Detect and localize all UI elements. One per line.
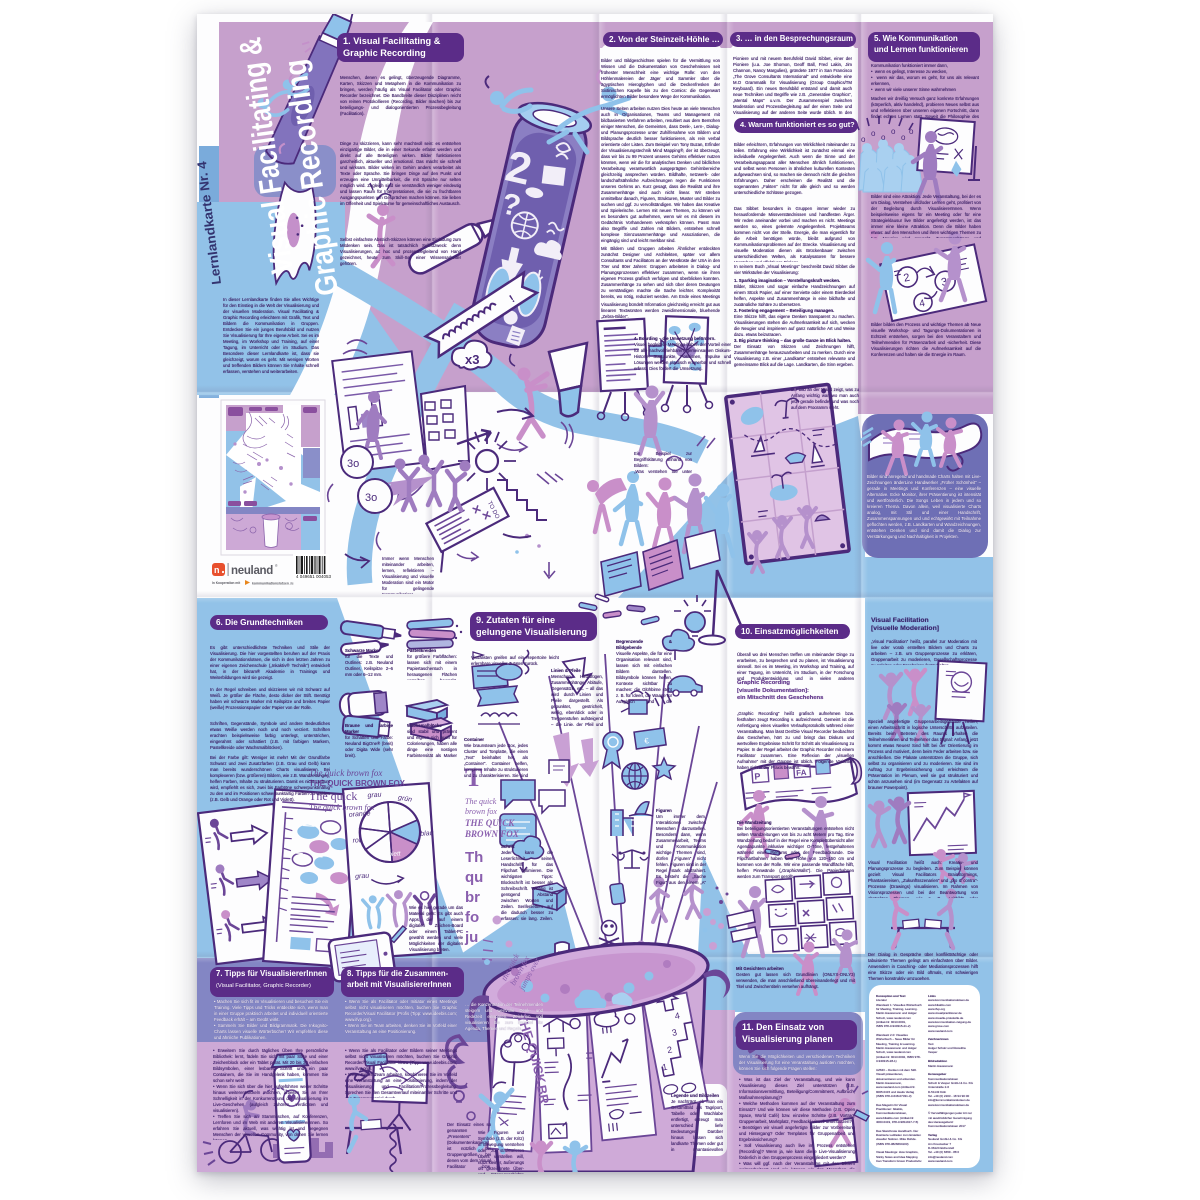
svg-text:grau: grau bbox=[355, 873, 370, 881]
svg-text:o: o bbox=[861, 135, 866, 144]
svg-text:In Kooperation mit: In Kooperation mit bbox=[212, 581, 241, 585]
svg-text:BROWN FOX: BROWN FOX bbox=[464, 829, 520, 839]
svg-text:THE QUICK: THE QUICK bbox=[465, 818, 515, 828]
svg-text:br: br bbox=[465, 889, 480, 906]
svg-text:FA: FA bbox=[796, 768, 807, 778]
svg-text:o: o bbox=[871, 129, 876, 138]
svg-text:n: n bbox=[214, 565, 220, 575]
svg-text:qu: qu bbox=[465, 869, 483, 886]
svg-text:fo: fo bbox=[465, 909, 479, 926]
svg-text:o: o bbox=[901, 133, 906, 142]
svg-text:grau: grau bbox=[367, 792, 382, 800]
svg-text:ju: ju bbox=[464, 929, 478, 946]
svg-text:kommunikationslotsen.de: kommunikationslotsen.de bbox=[252, 582, 294, 586]
svg-text:P: P bbox=[754, 771, 761, 781]
svg-text:brown fox: brown fox bbox=[465, 807, 497, 816]
svg-text:x3: x3 bbox=[465, 352, 479, 367]
svg-text:blau: blau bbox=[420, 830, 434, 838]
svg-text:3o: 3o bbox=[347, 458, 359, 470]
svg-text:4 049651 004053: 4 049651 004053 bbox=[296, 574, 332, 579]
svg-text:neuland: neuland bbox=[231, 565, 273, 577]
svg-text:3o: 3o bbox=[365, 492, 377, 504]
svg-text:o: o bbox=[891, 127, 896, 136]
svg-text:The quick: The quick bbox=[465, 797, 497, 806]
svg-text:Th: Th bbox=[465, 849, 483, 866]
svg-text:violett: violett bbox=[383, 850, 402, 858]
svg-text:o: o bbox=[881, 133, 886, 142]
svg-text:®: ® bbox=[275, 564, 278, 568]
svg-text:The quick brown fox: The quick brown fox bbox=[309, 803, 375, 812]
